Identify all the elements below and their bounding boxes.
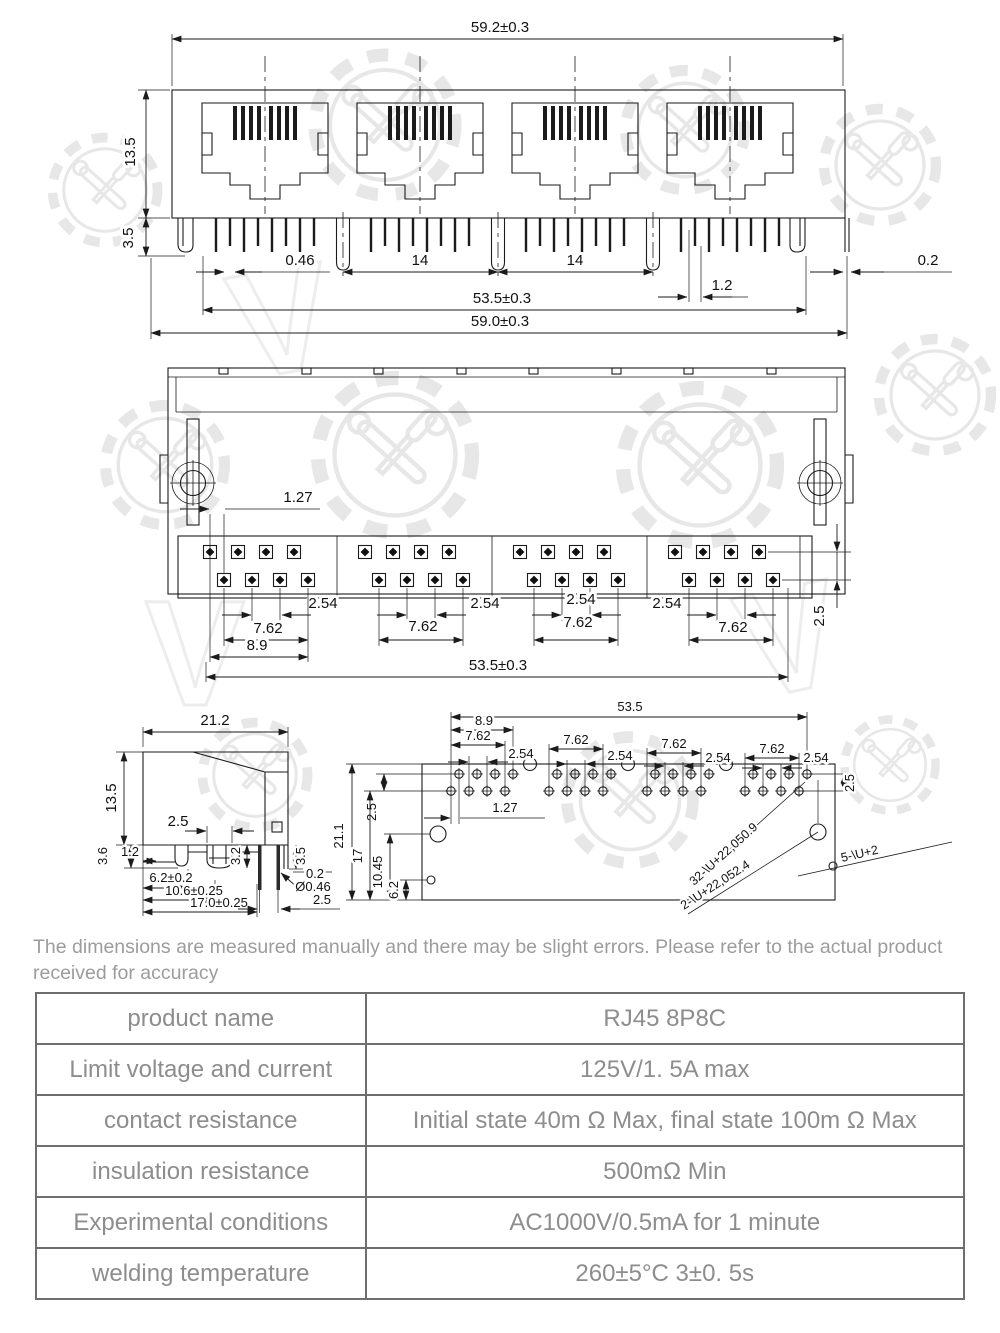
- dim-pin-pitch: 2.54: [470, 595, 499, 612]
- dim-pin-pitch: 2.54: [705, 750, 730, 765]
- dim-group-span: 7.62: [563, 732, 588, 747]
- dim-leg-offset-b: 1.2: [121, 844, 139, 859]
- dim-group-span: 7.62: [465, 728, 490, 743]
- dim-pos-post: 10.45: [370, 856, 385, 889]
- dim-tab-offset: 1.2: [712, 277, 733, 294]
- dim-group-span: 7.62: [661, 736, 686, 751]
- dim-hole-span: 53.5: [617, 699, 642, 714]
- dim-pin-pitch: 2.54: [508, 746, 533, 761]
- spec-table: product name RJ45 8P8C Limit voltage and…: [35, 992, 965, 1300]
- dim-port-pitch: 14: [412, 252, 429, 269]
- gear-logo-icon: [623, 388, 777, 542]
- shield-notches: [219, 368, 776, 374]
- dim-depth: 21.2: [200, 712, 229, 729]
- table-row: welding temperature 260±5°C 3±0. 5s: [36, 1248, 964, 1299]
- dim-edge-gap: 0.2: [918, 252, 939, 269]
- dim-pin-pitch: 2.54: [607, 748, 632, 763]
- dim-overall-width: 59.2±0.3: [471, 19, 529, 36]
- dim-pin-pos-c: 17.0±0.25: [190, 895, 248, 910]
- dim-bottom-width: 59.0±0.3: [471, 313, 529, 330]
- dim-post-depth: 3.2: [228, 847, 243, 865]
- disclaimer-note: The dimensions are measured manually and…: [33, 934, 978, 986]
- spec-label: Experimental conditions: [36, 1197, 366, 1248]
- watermark-letter: V: [723, 547, 856, 732]
- dim-pin-width: 0.46: [285, 252, 314, 269]
- watermark-layer: V V V: [53, 55, 992, 863]
- spec-value: 500mΩ Min: [366, 1146, 964, 1197]
- table-row: product name RJ45 8P8C: [36, 993, 964, 1044]
- spec-value: 125V/1. 5A max: [366, 1044, 964, 1095]
- dim-board-depth: 21.1: [331, 823, 346, 848]
- datasheet-page: V V V 59.2±0.3 0.46 14 14 1.2: [0, 0, 1000, 1333]
- dim-group-span: 7.62: [253, 620, 282, 637]
- gear-logo-icon: [845, 720, 936, 811]
- gear-logo-icon: [879, 339, 991, 451]
- watermark-letter: V: [217, 229, 345, 412]
- dim-group-span: 7.62: [718, 619, 747, 636]
- spec-value: Initial state 40m Ω Max, final state 100…: [366, 1095, 964, 1146]
- dim-leg-pitch: 2.5: [313, 892, 331, 907]
- dim-group-edge-span: 8.9: [247, 637, 268, 654]
- table-row: Experimental conditions AC1000V/0.5mA fo…: [36, 1197, 964, 1248]
- spec-label: welding temperature: [36, 1248, 366, 1299]
- dim-row-gap: 2.5: [811, 606, 828, 627]
- dim-pin-span: 53.5±0.3: [469, 657, 527, 674]
- spec-label: insulation resistance: [36, 1146, 366, 1197]
- spec-label: contact resistance: [36, 1095, 366, 1146]
- dim-body-height: 13.5: [122, 137, 139, 166]
- dim-row-offset: 1.27: [283, 489, 312, 506]
- table-row: insulation resistance 500mΩ Min: [36, 1146, 964, 1197]
- gear-logo-icon: [318, 378, 472, 532]
- callout-shield-holes: 5-\U+2: [840, 843, 880, 865]
- dim-pin-pitch: 2.54: [308, 595, 337, 612]
- technical-drawing: V V V 59.2±0.3 0.46 14 14 1.2: [0, 0, 1000, 932]
- dim-post-width: 2.5: [168, 813, 189, 830]
- dim-row-gap: 2.5: [842, 774, 857, 792]
- table-row: Limit voltage and current 125V/1. 5A max: [36, 1044, 964, 1095]
- spec-value: AC1000V/0.5mA for 1 minute: [366, 1197, 964, 1248]
- dim-pos-shield: 6.2: [386, 881, 401, 899]
- gear-logo-icon: [53, 138, 158, 243]
- dim-pin-length: 3.5: [120, 228, 137, 249]
- dim-pos-row2: 17: [350, 849, 365, 863]
- dim-group-span: 7.62: [759, 741, 784, 756]
- spec-value: 260±5°C 3±0. 5s: [366, 1248, 964, 1299]
- spec-value: RJ45 8P8C: [366, 993, 964, 1044]
- dim-pin-pitch: 2.54: [566, 591, 595, 608]
- dim-pin-span: 53.5±0.3: [473, 290, 531, 307]
- dim-height: 13.5: [103, 783, 120, 812]
- spec-label: Limit voltage and current: [36, 1044, 366, 1095]
- dim-pin-pitch: 2.54: [652, 595, 681, 612]
- dim-port-pitch: 14: [567, 252, 584, 269]
- dim-group-span: 7.62: [563, 614, 592, 631]
- gear-logo-icon: [824, 109, 936, 221]
- gear-logo-icon: [626, 71, 745, 190]
- gear-logo-icon: [106, 406, 225, 525]
- dim-edge-span: 8.9: [475, 713, 493, 728]
- dim-shield-leg: 3.5: [293, 847, 308, 865]
- pin-pads: [204, 546, 780, 587]
- dim-pos-row-gap: 2.5: [364, 803, 379, 821]
- dim-leg-offset-a: 3.6: [95, 847, 110, 865]
- dim-group-span: 7.62: [408, 618, 437, 635]
- table-row: contact resistance Initial state 40m Ω M…: [36, 1095, 964, 1146]
- dim-row-offset: 1.27: [492, 800, 517, 815]
- dim-pin-pitch: 2.54: [803, 750, 828, 765]
- spec-label: product name: [36, 993, 366, 1044]
- gear-logo-icon: [203, 723, 308, 828]
